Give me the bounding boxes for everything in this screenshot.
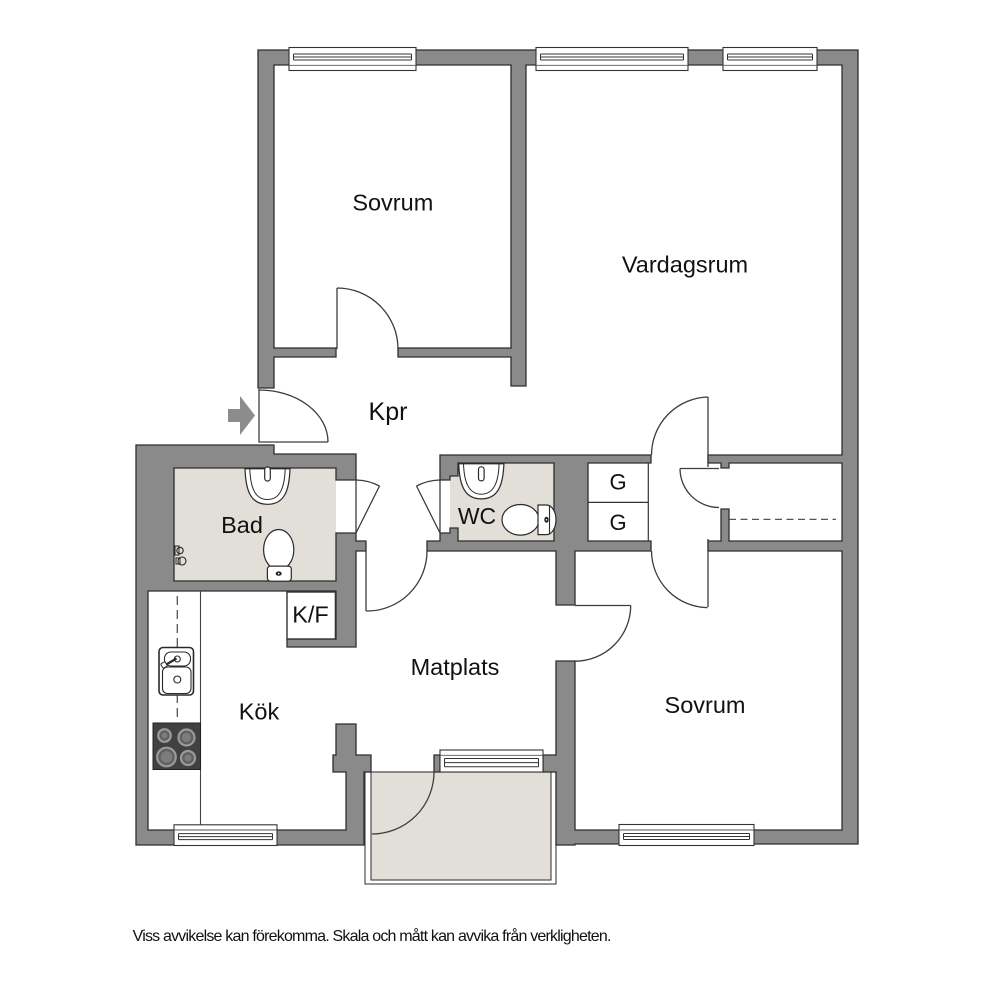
svg-text:Viss avvikelse kan förekomma.: Viss avvikelse kan förekomma. Skala och … <box>133 927 612 945</box>
svg-text:Sovrum: Sovrum <box>352 189 433 215</box>
svg-text:Kök: Kök <box>239 699 280 725</box>
svg-text:Vardagsrum: Vardagsrum <box>622 252 748 278</box>
svg-text:G: G <box>609 510 626 535</box>
svg-text:Bad: Bad <box>221 512 263 538</box>
svg-text:K/F: K/F <box>292 601 329 627</box>
svg-text:WC: WC <box>458 503 496 529</box>
svg-text:Sovrum: Sovrum <box>665 692 746 718</box>
svg-text:G: G <box>609 470 626 495</box>
svg-text:Matplats: Matplats <box>411 654 500 680</box>
svg-text:Kpr: Kpr <box>369 398 408 426</box>
